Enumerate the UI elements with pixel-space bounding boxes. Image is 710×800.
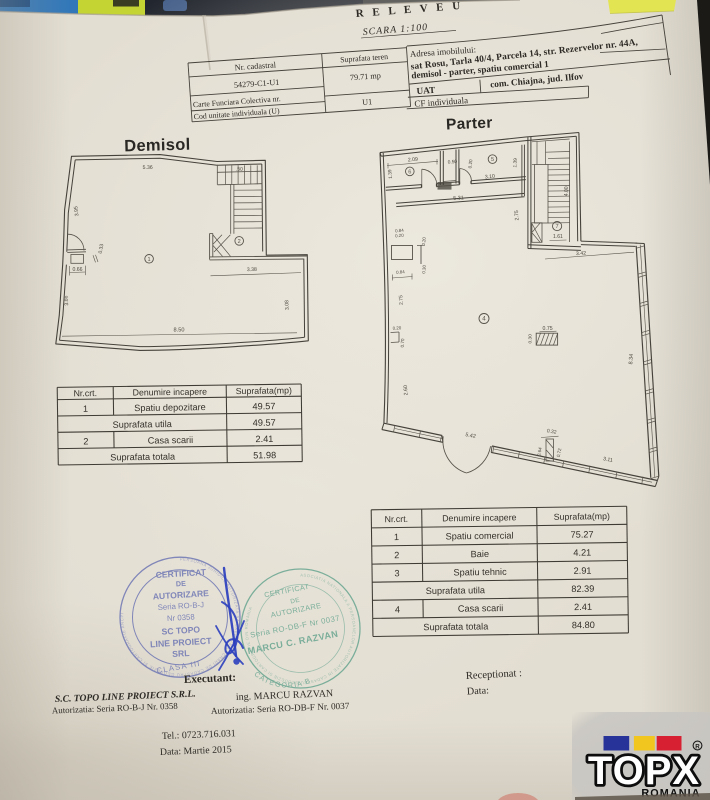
svg-text:5: 5 [491,157,494,163]
svg-text:Denumire incapere: Denumire incapere [133,387,208,398]
svg-text:0.20: 0.20 [421,236,427,246]
svg-text:1.61: 1.61 [553,234,563,240]
svg-text:4.21: 4.21 [573,548,591,558]
svg-text:0.75: 0.75 [543,326,553,332]
svg-text:51.98: 51.98 [253,450,276,460]
svg-text:4.00: 4.00 [564,186,570,196]
svg-text:2.41: 2.41 [255,434,273,444]
svg-text:2.91: 2.91 [574,566,592,576]
svg-text:Nr 0358: Nr 0358 [167,612,195,623]
svg-text:3.08: 3.08 [284,300,291,311]
svg-text:8.50: 8.50 [174,328,185,334]
svg-text:Spatiu comercial: Spatiu comercial [446,531,514,542]
svg-text:2.75: 2.75 [398,295,405,305]
svg-text:Casa scarii: Casa scarii [148,435,194,446]
svg-text:0.20: 0.20 [468,159,474,169]
svg-text:Nr.crt.: Nr.crt. [73,388,97,398]
svg-text:3.66: 3.66 [63,295,70,306]
svg-text:Executant:: Executant: [184,672,237,686]
svg-text:TOPX: TOPX [588,749,700,793]
svg-text:0.70: 0.70 [400,338,405,348]
svg-text:Baie: Baie [471,549,490,559]
svg-text:0.66: 0.66 [72,267,82,273]
svg-text:2: 2 [394,550,399,560]
svg-text:Casa scarii: Casa scarii [458,603,504,614]
svg-text:Parter: Parter [446,114,493,133]
svg-text:Spatiu depozitare: Spatiu depozitare [134,402,206,413]
svg-text:49.57: 49.57 [252,401,275,411]
svg-text:Suprafata(mp): Suprafata(mp) [554,511,610,522]
svg-text:49.57: 49.57 [253,418,276,428]
svg-text:1: 1 [83,404,88,414]
svg-text:6: 6 [408,169,411,175]
svg-text:Nr.crt.: Nr.crt. [385,514,409,524]
svg-text:4: 4 [395,605,400,615]
svg-text:2.09: 2.09 [408,157,419,164]
svg-text:DE: DE [176,579,187,589]
svg-text:2.60: 2.60 [403,385,410,396]
svg-text:4: 4 [482,316,486,323]
svg-text:82.39: 82.39 [571,584,594,594]
svg-text:Denumire incapere: Denumire incapere [442,512,517,523]
svg-text:75.27: 75.27 [570,529,593,539]
svg-text:UAT: UAT [416,85,435,96]
svg-text:Spatiu tehnic: Spatiu tehnic [453,567,507,578]
svg-text:Suprafata utila: Suprafata utila [426,585,486,596]
svg-text:Suprafata totala: Suprafata totala [110,452,176,463]
svg-text:2: 2 [238,239,241,245]
svg-text:0.20: 0.20 [395,233,405,239]
svg-text:2.75: 2.75 [514,210,521,221]
svg-text:Suprafata(mp): Suprafata(mp) [236,385,292,396]
svg-text:Suprafata utila: Suprafata utila [113,419,173,430]
svg-text:1: 1 [148,257,151,263]
svg-text:3.10: 3.10 [485,174,496,181]
svg-text:5.31: 5.31 [453,195,464,202]
svg-text:0.30: 0.30 [421,264,427,274]
svg-text:0.50: 0.50 [447,159,457,166]
svg-text:8.34: 8.34 [628,354,635,365]
svg-text:Data:: Data: [467,685,490,697]
svg-text:0.84: 0.84 [395,228,405,234]
svg-text:SRL: SRL [172,648,190,659]
svg-text:7: 7 [556,224,559,230]
svg-text:84.80: 84.80 [572,620,595,630]
svg-text:Suprafata totala: Suprafata totala [423,621,489,632]
svg-text:1.39: 1.39 [387,169,394,179]
svg-text:1: 1 [394,532,399,542]
svg-text:1.39: 1.39 [512,158,519,168]
svg-text:0.30: 0.30 [528,334,534,344]
svg-text:Demisol: Demisol [124,136,191,156]
svg-text:2: 2 [83,436,88,446]
svg-text:0.84: 0.84 [396,269,406,275]
svg-text:.50: .50 [236,167,243,173]
svg-text:3.95: 3.95 [73,206,80,217]
svg-text:0.20: 0.20 [393,325,402,330]
svg-text:3: 3 [394,568,399,578]
svg-text:5.36: 5.36 [143,165,153,171]
svg-text:2.41: 2.41 [574,602,592,612]
svg-text:U1: U1 [362,97,373,107]
svg-text:3.38: 3.38 [247,267,257,273]
